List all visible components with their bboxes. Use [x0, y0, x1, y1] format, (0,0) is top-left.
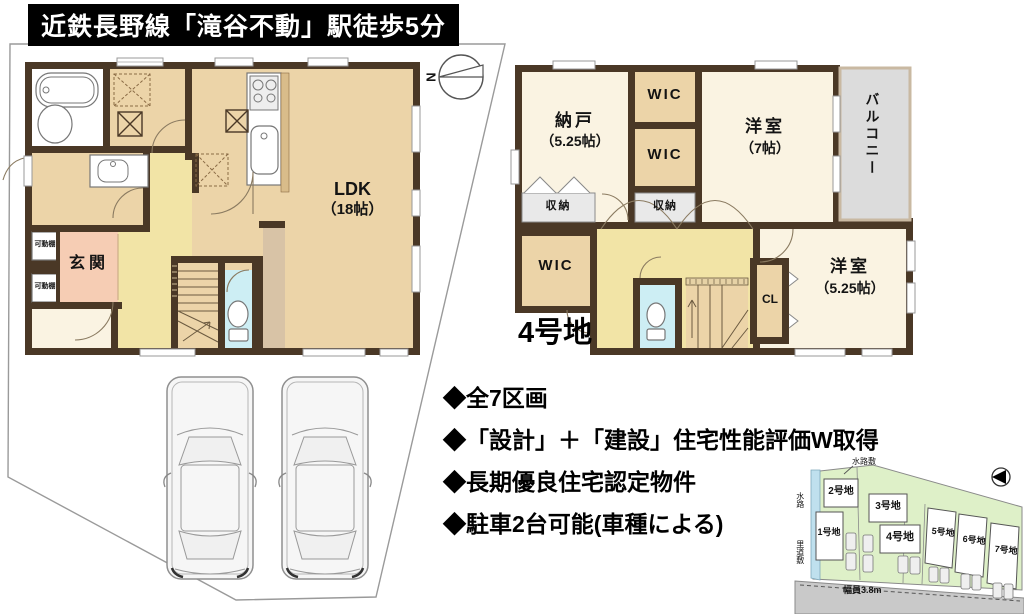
- feature-item-2: ◆「設計」＋「建設」住宅性能評価W取得: [443, 419, 879, 461]
- feature-item-1: ◆全7区画: [443, 377, 879, 419]
- feature-item-3: ◆長期優良住宅認定物件: [443, 461, 879, 503]
- label-wic-mid: WIC: [635, 147, 695, 164]
- label-lot1: 1号地: [814, 528, 844, 538]
- bath-tub-oval: [38, 105, 72, 143]
- hall-1f-lower: [118, 228, 178, 348]
- label-lot2: 2号地: [822, 486, 860, 497]
- label-nando-size: （5.25帖）: [518, 134, 632, 149]
- compass-main: [439, 55, 483, 99]
- label-waterway: 水路: [795, 492, 804, 508]
- label-yoshitsu7: 洋室: [715, 118, 815, 137]
- label-wic-bottom: WIC: [522, 258, 590, 275]
- label-rido: 里道敷: [795, 540, 804, 564]
- label-ldk-size: （18帖）: [300, 202, 405, 219]
- compass-letter: N: [425, 72, 439, 81]
- toilet-1f-icon: [228, 301, 248, 341]
- banner: 近鉄長野線「滝谷不動」駅徒歩5分: [28, 4, 459, 46]
- bathtub: [36, 73, 98, 107]
- feature-item-4: ◆駐車2台可能(車種による): [443, 503, 879, 545]
- label-balcony: バルコニー: [864, 92, 879, 222]
- room-utility: [110, 69, 185, 146]
- label-yoshitsu5: 洋室: [800, 258, 900, 277]
- label-ldk: LDK: [300, 180, 405, 200]
- stairs-2f: [686, 285, 748, 348]
- feature-list: ◆全7区画 ◆「設計」＋「建設」住宅性能評価W取得 ◆長期優良住宅認定物件 ◆駐…: [443, 377, 879, 545]
- toilet-2f-icon: [647, 303, 665, 340]
- car-right: [279, 377, 371, 579]
- vanity-sink: [90, 155, 148, 187]
- label-yoshitsu5-size: （5.25帖）: [790, 281, 910, 296]
- sitemap-compass: [992, 468, 1010, 486]
- parking-area: [164, 377, 371, 579]
- stairs-1f: [178, 263, 218, 348]
- label-road-width: 幅員3.8m: [843, 586, 882, 596]
- label-shelf-bottom: 可動棚: [32, 283, 58, 291]
- label-waterway-area: 水路敷: [852, 458, 876, 467]
- feature-wall: [263, 228, 285, 348]
- label-yoshitsu7-size: （7帖）: [705, 141, 825, 156]
- label-nando: 納戸: [530, 112, 620, 131]
- car-left: [164, 377, 256, 579]
- label-lot-caption: 4号地: [518, 318, 592, 350]
- label-shelf-top: 可動棚: [32, 241, 58, 249]
- label-wic-top: WIC: [635, 87, 695, 104]
- flyer-canvas: 近鉄長野線「滝谷不動」駅徒歩5分 LDK （18帖） 玄関 可動棚 可動棚 N …: [0, 0, 1024, 614]
- label-cl: CL: [755, 293, 785, 306]
- label-lot4: 4号地: [879, 531, 921, 543]
- room-porch: [32, 309, 111, 348]
- label-lot3: 3号地: [868, 501, 908, 512]
- label-closet-mid: 収納: [635, 200, 695, 212]
- label-closet-top: 収納: [522, 200, 595, 212]
- label-genkan: 玄関: [58, 255, 120, 273]
